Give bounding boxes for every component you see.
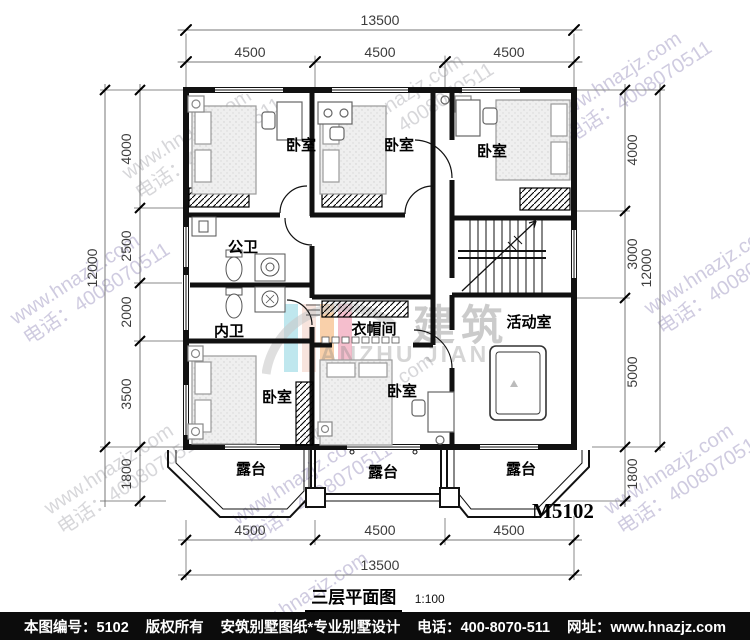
plan-code: M5102	[532, 499, 594, 524]
dimensions-top: 13500 4500 4500 4500	[178, 12, 582, 88]
label-bedroom-top-right: 卧室	[477, 142, 507, 160]
dim-bottom-seg1: 4500	[234, 522, 265, 538]
label-cloakroom: 衣帽间	[351, 320, 396, 338]
dim-top-overall: 13500	[361, 12, 400, 28]
dim-top-seg2: 4500	[364, 44, 395, 60]
label-public-bath: 公卫	[228, 239, 258, 256]
dim-bottom-overall: 13500	[361, 557, 400, 573]
label-terrace-right: 露台	[506, 460, 536, 478]
bath-fixtures	[192, 217, 285, 318]
dim-left-seg2: 2500	[118, 230, 134, 261]
label-terrace-left: 露台	[236, 460, 266, 478]
footer-copyright: 版权所有	[146, 616, 204, 637]
dim-bottom-seg3: 4500	[493, 522, 524, 538]
window-top-2	[332, 86, 408, 94]
window-left-1	[182, 227, 190, 267]
dim-left-seg3: 2000	[118, 296, 134, 327]
footer-studio: 安筑别墅图纸*专业别墅设计	[221, 616, 401, 637]
dimensions-bottom: 4500 4500 4500 13500	[178, 516, 582, 580]
dim-right-seg4: 1800	[624, 458, 640, 489]
label-bedroom-bottom-left: 卧室	[262, 388, 292, 406]
footer-site: 网址：www.hnazjz.com	[567, 616, 726, 637]
dim-top-seg1: 4500	[234, 44, 265, 60]
dim-bottom-seg2: 4500	[364, 522, 395, 538]
dimensions-left: 12000 4000 2500 2000 3500 1800	[84, 84, 183, 507]
floor-plan-drawing: 建筑 ANZHU JIANZHU 13500 4500 4500 4500	[0, 0, 750, 612]
dim-right-seg3: 5000	[624, 356, 640, 387]
window-top-3	[462, 86, 520, 94]
label-terrace-mid: 露台	[368, 463, 398, 481]
label-bedroom-bottom-mid: 卧室	[387, 382, 417, 400]
label-bedroom-top-left: 卧室	[286, 136, 316, 154]
dim-left-seg5: 1800	[118, 458, 134, 489]
label-activity-room: 活动室	[506, 313, 551, 331]
window-right-1	[570, 230, 578, 278]
staircase	[458, 220, 546, 293]
dim-right-overall: 12000	[638, 248, 654, 287]
furniture	[188, 96, 570, 445]
terrace-door-3	[480, 443, 538, 451]
dim-left-seg4: 3500	[118, 378, 134, 409]
dim-top-seg3: 4500	[493, 44, 524, 60]
footer-serial: 本图编号：5102	[24, 616, 129, 637]
dim-right-seg1: 4000	[624, 134, 640, 165]
footer-phone: 电话：400-8070-511	[417, 616, 550, 637]
dim-left-seg1: 4000	[118, 133, 134, 164]
dim-left-overall: 12000	[84, 248, 100, 287]
footer-bar: 本图编号：5102 版权所有 安筑别墅图纸*专业别墅设计 电话：400-8070…	[0, 612, 750, 640]
window-top-1	[215, 86, 283, 94]
floor-plan-sheet: www.hnazjz.com 电话：4008070511 www.hnazjz.…	[0, 0, 750, 640]
window-left-2	[182, 275, 190, 330]
label-inner-bath: 内卫	[214, 322, 244, 340]
label-bedroom-top-mid: 卧室	[384, 136, 414, 154]
